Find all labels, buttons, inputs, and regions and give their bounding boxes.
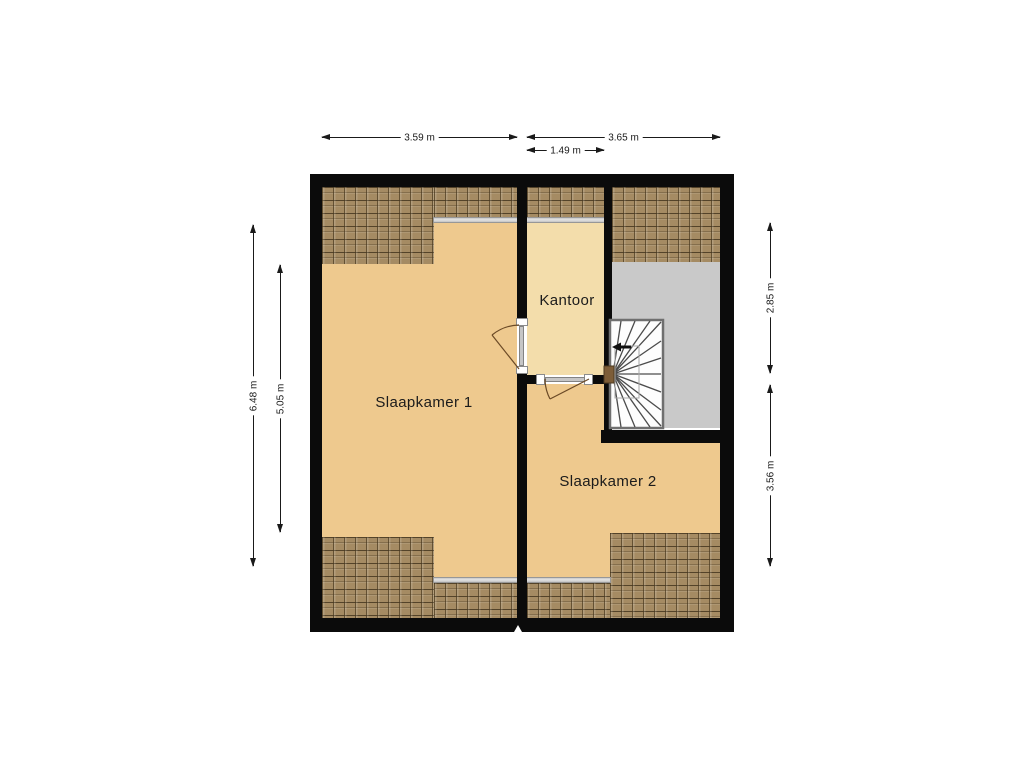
dimension-arrow-icon — [767, 222, 773, 231]
wall-exterior-bottom — [310, 618, 734, 632]
dimension-left-inner-depth: 5.05 m — [280, 265, 281, 532]
room-label-kantoor: Kantoor — [517, 292, 617, 309]
dimension-label: 3.65 m — [604, 132, 643, 143]
wall-exterior-top — [310, 174, 734, 187]
door-kantoor-south-leaf — [545, 377, 585, 382]
dimension-right-slaapkamer2-depth: 3.56 m — [770, 385, 771, 566]
window-sill-top-right — [526, 217, 606, 223]
dimension-label: 6.48 m — [248, 376, 259, 415]
dimension-label: 2.85 m — [765, 279, 776, 318]
door-kantoor-west-leaf — [519, 326, 524, 366]
roof-slope-hatch-top-dormer-left — [434, 187, 517, 217]
roof-slope-hatch-bottom-dormer-left — [434, 583, 517, 618]
door-kantoor-south-hinge-left — [536, 374, 545, 385]
roof-slope-hatch-top-right — [612, 187, 720, 262]
dimension-left-total-depth: 6.48 m — [253, 225, 254, 566]
dimension-arrow-icon — [277, 264, 283, 273]
room-label-slaapkamer2: Slaapkamer 2 — [508, 473, 708, 490]
door-kantoor-west-hinge-top — [516, 318, 528, 326]
wall-exterior-right — [720, 174, 734, 632]
roof-slope-hatch-bottom-dormer-right — [527, 583, 610, 618]
door-kantoor-south-hinge-right — [584, 374, 593, 385]
wall-interior-kantoor-stairs — [604, 187, 612, 433]
roof-slope-hatch-top-kantoor — [527, 187, 604, 217]
window-sill-bottom-left — [433, 577, 518, 583]
roof-slope-hatch-top-left — [322, 187, 434, 264]
roof-slope-hatch-bottom-right — [610, 533, 720, 618]
room-label-slaapkamer1: Slaapkamer 1 — [324, 394, 524, 411]
dimension-arrow-icon — [712, 134, 721, 140]
window-sill-bottom-right — [526, 577, 611, 583]
dimension-arrow-icon — [277, 524, 283, 533]
dimension-arrow-icon — [250, 558, 256, 567]
dimension-arrow-icon — [509, 134, 518, 140]
dimension-label: 5.05 m — [275, 379, 286, 418]
stair-landing-floor — [612, 262, 720, 428]
dimension-arrow-icon — [250, 224, 256, 233]
dimension-label: 3.56 m — [765, 456, 776, 495]
door-kantoor-west-hinge-bottom — [516, 366, 528, 374]
wall-interior-stairs-south — [601, 430, 720, 443]
dimension-arrow-icon — [526, 134, 535, 140]
dimension-top-slaapkamer1-width: 3.59 m — [322, 137, 517, 138]
dimension-arrow-icon — [767, 365, 773, 374]
dimension-right-landing-depth: 2.85 m — [770, 223, 771, 373]
window-sill-top-left — [433, 217, 518, 223]
dimension-arrow-icon — [767, 384, 773, 393]
dimension-label: 1.49 m — [546, 145, 585, 156]
wall-exterior-left — [310, 174, 322, 632]
dimension-arrow-icon — [321, 134, 330, 140]
dimension-top-right-width: 3.65 m — [527, 137, 720, 138]
wall-joint-marker — [514, 625, 522, 632]
dimension-arrow-icon — [526, 147, 535, 153]
dimension-label: 3.59 m — [400, 132, 439, 143]
dimension-top-kantoor-width: 1.49 m — [527, 150, 604, 151]
dimension-arrow-icon — [767, 558, 773, 567]
dimension-arrow-icon — [596, 147, 605, 153]
floorplan-canvas: Slaapkamer 1 Kantoor Slaapkamer 2 3.59 m… — [0, 0, 1024, 768]
roof-slope-hatch-bottom-left — [322, 537, 434, 618]
